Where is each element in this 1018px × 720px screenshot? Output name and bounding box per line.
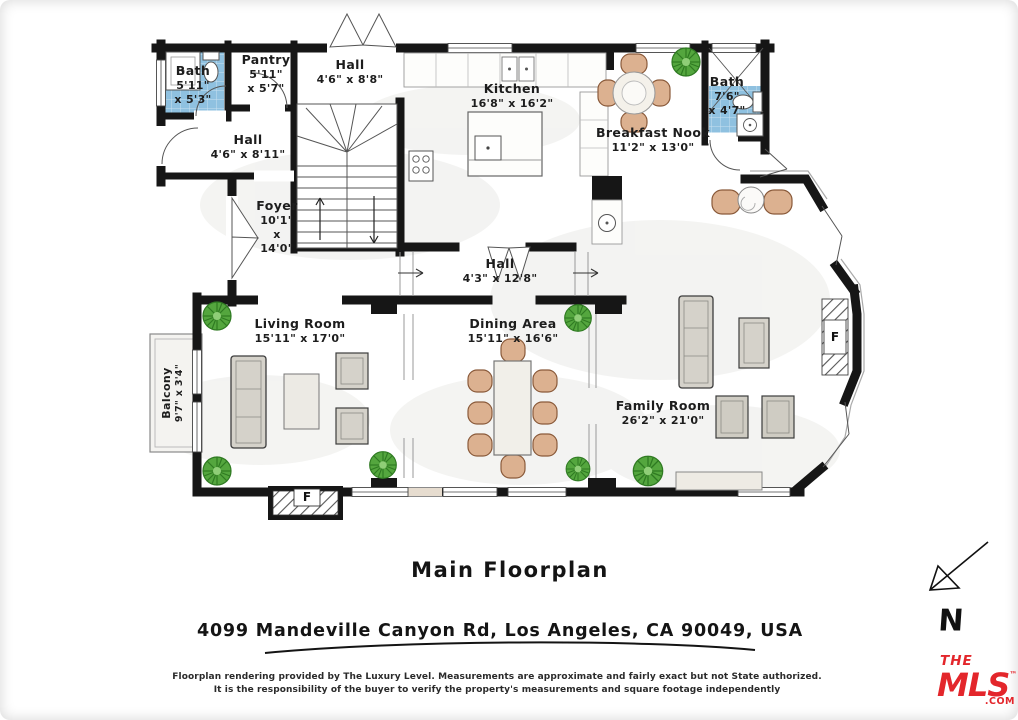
- page-title: Main Floorplan: [411, 558, 609, 582]
- room-dims: 10'1": [256, 214, 297, 228]
- room-dims: 5'11": [242, 68, 291, 82]
- fireplace-label-living: F: [303, 490, 311, 504]
- room-name: Family Room: [616, 398, 711, 414]
- room-label-foyer: Foyer 10'1" x 14'0": [256, 198, 297, 256]
- kitchen-island: [468, 112, 542, 176]
- range: [409, 151, 433, 181]
- room-dims: 11'2" x 13'0": [596, 141, 710, 155]
- room-name: Pantry: [242, 52, 291, 68]
- room-label-pantry: Pantry 5'11" x 5'7": [242, 52, 291, 96]
- armchair: [739, 318, 769, 368]
- disclaimer-line2: It is the responsibility of the buyer to…: [214, 685, 781, 695]
- room-dims: 4'6" x 8'11": [211, 148, 286, 162]
- room-label-bath-left: Bath 5'11" x 5'3": [174, 63, 211, 107]
- room-label-bath-right: Bath 7'6" x 4'7": [708, 74, 745, 118]
- room-label-hall-center: Hall 4'3" x 12'8": [463, 256, 538, 286]
- room-dims: 15'11" x 16'6": [468, 332, 559, 346]
- room-label-hall-top: Hall 4'6" x 8'8": [317, 57, 384, 87]
- room-dims: 26'2" x 21'0": [616, 414, 711, 428]
- room-name: Hall: [317, 57, 384, 73]
- room-name: Living Room: [254, 316, 345, 332]
- room-dims: x 5'7": [242, 82, 291, 96]
- room-name: Bath: [708, 74, 745, 90]
- room-label-breakfast-nook: Breakfast Nook 11'2" x 13'0": [596, 125, 710, 155]
- room-name: Hall: [463, 256, 538, 272]
- room-dims: 4'3" x 12'8": [463, 272, 538, 286]
- mls-logo: THE MLS ™ .COM: [937, 655, 1015, 706]
- refrigerator: [592, 176, 622, 200]
- floorplan-image: Bath 5'11" x 5'3" Pantry 5'11" x 5'7" Ha…: [0, 0, 1018, 720]
- room-dims: 14'0": [256, 242, 297, 256]
- north-label: N: [937, 604, 965, 639]
- room-label-family-room: Family Room 26'2" x 21'0": [616, 398, 711, 428]
- trademark-symbol: ™: [1009, 671, 1016, 679]
- room-dims: 9'7" x 3'4": [174, 364, 186, 422]
- room-name: Kitchen: [471, 81, 554, 97]
- room-dims: 4'6" x 8'8": [317, 73, 384, 87]
- room-name: Balcony: [160, 364, 174, 422]
- room-dims: x 5'3": [174, 93, 211, 107]
- room-dims: 5'11": [174, 79, 211, 93]
- address-underline: [265, 642, 755, 653]
- stairs: [297, 104, 397, 248]
- room-label-balcony: Balcony 9'7" x 3'4": [160, 364, 186, 422]
- north-arrow-icon: [930, 542, 988, 590]
- room-dims: x 4'7": [708, 104, 745, 118]
- room-dims: 7'6": [708, 90, 745, 104]
- disclaimer-line1: Floorplan rendering provided by The Luxu…: [172, 672, 821, 682]
- room-label-hall-left: Hall 4'6" x 8'11": [211, 132, 286, 162]
- room-dims: x: [256, 228, 297, 242]
- coffee-table: [284, 374, 319, 429]
- room-name: Hall: [211, 132, 286, 148]
- room-label-dining-area: Dining Area 15'11" x 16'6": [468, 316, 559, 346]
- room-dims: 15'11" x 17'0": [254, 332, 345, 346]
- room-name: Breakfast Nook: [596, 125, 710, 141]
- dining-table: [494, 361, 531, 455]
- room-dims: 16'8" x 16'2": [471, 97, 554, 111]
- room-label-living-room: Living Room 15'11" x 17'0": [254, 316, 345, 346]
- toilet-tank: [203, 52, 219, 60]
- room-name: Foyer: [256, 198, 297, 214]
- room-label-kitchen: Kitchen 16'8" x 16'2": [471, 81, 554, 111]
- property-address: 4099 Mandeville Canyon Rd, Los Angeles, …: [197, 621, 803, 641]
- credenza: [676, 472, 762, 490]
- fireplace-label-family: F: [831, 330, 839, 344]
- room-name: Bath: [174, 63, 211, 79]
- room-name: Dining Area: [468, 316, 559, 332]
